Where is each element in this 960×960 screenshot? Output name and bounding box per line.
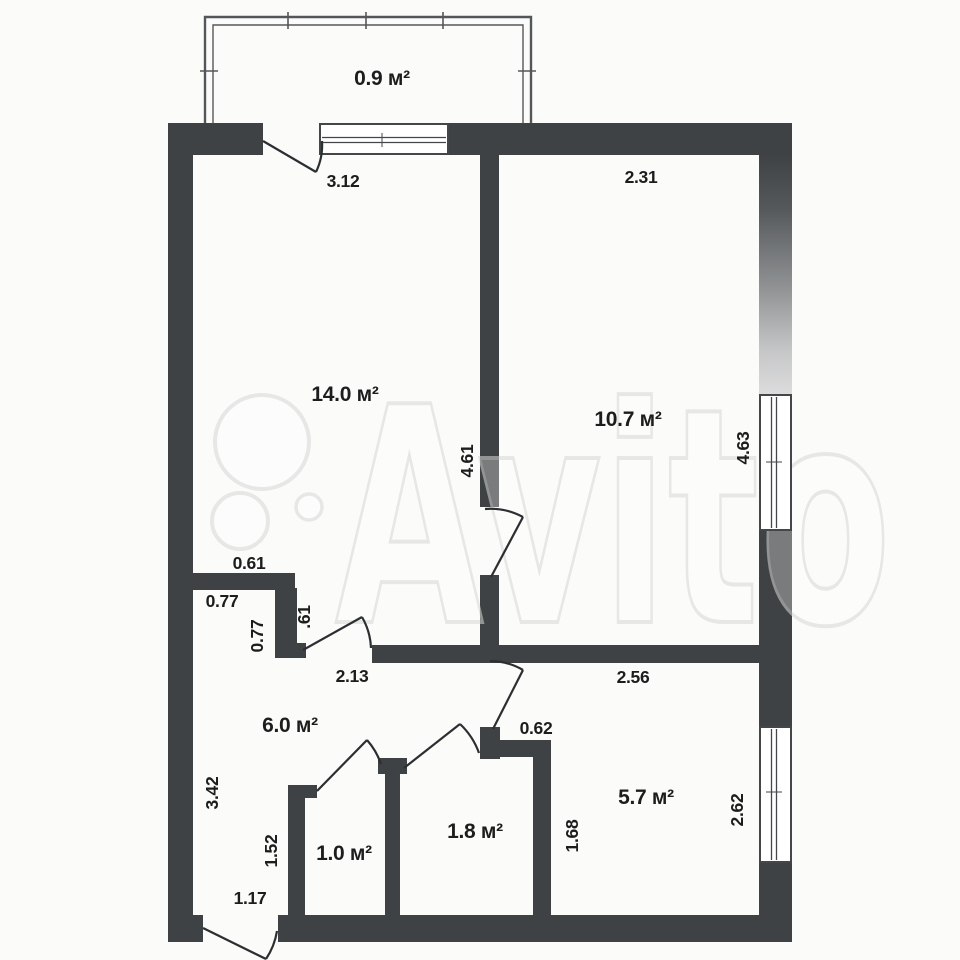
wall-right-middle xyxy=(759,530,792,727)
hall-area-label: 6.0 м² xyxy=(255,714,325,738)
wall-kitchen-door-jamb xyxy=(480,727,500,759)
dim-closet-small-left-height: 1.52 xyxy=(261,829,281,873)
wall-room-divider xyxy=(480,155,499,507)
wall-right-upper-gradient xyxy=(759,155,792,395)
window-right-upper xyxy=(760,395,791,530)
balcony-area-label: 0.9 м² xyxy=(347,67,417,91)
floorplan: Avito xyxy=(0,0,960,960)
dim-entry-width: 1.17 xyxy=(228,888,272,908)
dim-living-width: 3.12 xyxy=(321,171,365,191)
dim-notch-side: .61 xyxy=(294,595,314,639)
wall-closet-small-left xyxy=(288,785,305,915)
wall-mid-left xyxy=(372,645,480,663)
dim-bedroom-width: 2.31 xyxy=(619,167,663,187)
dim-hall-left-height: 3.42 xyxy=(202,771,222,815)
closet-large-area-label: 1.8 м² xyxy=(440,820,510,844)
door-entrance xyxy=(203,928,277,959)
dim-notch-height: 0.77 xyxy=(247,614,267,658)
window-right-lower xyxy=(760,727,791,862)
wall-notch-foot xyxy=(290,643,306,658)
watermark-text: Avito xyxy=(335,344,891,693)
bedroom-area-label: 10.7 м² xyxy=(588,408,668,432)
wall-mid-right xyxy=(499,645,759,663)
closet-small-area-label: 1.0 м² xyxy=(309,842,379,866)
dim-kitchen-left-height: 1.68 xyxy=(562,814,582,858)
wall-closet-small-right-jamb xyxy=(378,758,407,774)
door-between-rooms xyxy=(485,509,523,577)
wall-closet-large-top xyxy=(498,740,551,757)
wall-bottom-main xyxy=(278,915,792,942)
wall-closet-small-right xyxy=(385,758,400,915)
living-area-label: 14.0 м² xyxy=(305,383,385,407)
door-closet-small xyxy=(317,740,381,791)
window-top xyxy=(320,124,448,154)
dim-notch-top: 0.61 xyxy=(227,553,271,573)
wall-top-left-segment xyxy=(168,123,263,155)
wall-bottom-left-segment xyxy=(168,915,203,942)
dim-living-height: 4.61 xyxy=(457,439,477,483)
dim-kitchen-door-width: 0.62 xyxy=(514,718,558,738)
dim-notch-width: 0.77 xyxy=(200,591,244,611)
dim-hall-top-width: 2.13 xyxy=(330,666,374,686)
kitchen-area-label: 5.7 м² xyxy=(611,786,681,810)
wall-left xyxy=(168,123,193,942)
wall-closet-large-right xyxy=(533,757,551,915)
dim-kitchen-top-width: 2.56 xyxy=(611,667,655,687)
door-balcony xyxy=(263,141,322,172)
door-closet-large xyxy=(404,724,479,768)
dim-bedroom-height: 4.63 xyxy=(733,426,753,470)
wall-closet-small-left-jamb xyxy=(288,785,317,798)
wall-top-right-segment xyxy=(448,123,792,155)
wall-room-divider-stub xyxy=(480,575,499,663)
dim-kitchen-right-height: 2.62 xyxy=(727,788,747,832)
